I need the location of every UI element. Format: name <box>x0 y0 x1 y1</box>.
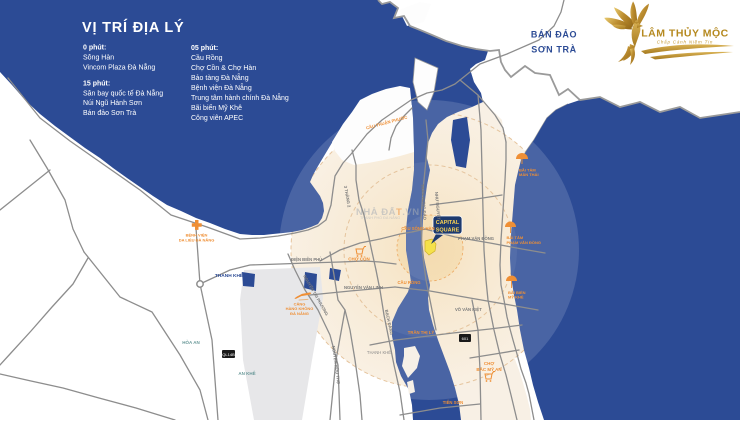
svg-text:Sông Hàn: Sông Hàn <box>83 55 114 62</box>
svg-text:Chắp Cánh Niềm Tin: Chắp Cánh Niềm Tin <box>657 39 713 45</box>
svg-text:CAPITAL: CAPITAL <box>436 220 460 226</box>
svg-text:SQUARE: SQUARE <box>436 228 460 234</box>
svg-text:Công viên APEC: Công viên APEC <box>191 115 243 122</box>
svg-text:LÂM THỦY MỘC: LÂM THỦY MỘC <box>641 27 728 40</box>
svg-text:0 phút:: 0 phút: <box>83 45 106 52</box>
svg-text:VÕ VĂN KIỆT: VÕ VĂN KIỆT <box>455 307 482 312</box>
svg-text:NGUYỄN VĂN LINH: NGUYỄN VĂN LINH <box>344 285 383 290</box>
svg-text:DA LIỄU ĐÀ NẴNG: DA LIỄU ĐÀ NẴNG <box>179 237 215 242</box>
svg-text:TIÊN SƠN: TIÊN SƠN <box>443 400 463 405</box>
svg-text:CHỢ CỒN: CHỢ CỒN <box>348 256 370 262</box>
svg-text:Sân bay quốc tế Đà Nẵng: Sân bay quốc tế Đà Nẵng <box>83 88 163 97</box>
svg-text:PHẠM VĂN ĐỒNG: PHẠM VĂN ĐỒNG <box>507 240 541 245</box>
svg-text:Trung tâm hành chính Đà Nẵng: Trung tâm hành chính Đà Nẵng <box>191 93 289 102</box>
svg-text:Bãi biển Mỹ Khê: Bãi biển Mỹ Khê <box>191 104 242 112</box>
svg-text:Bệnh viện Đà Nẵng: Bệnh viện Đà Nẵng <box>191 83 252 92</box>
svg-text:MỸ KHÊ: MỸ KHÊ <box>508 295 524 300</box>
svg-text:SƠN TRÀ: SƠN TRÀ <box>531 45 576 55</box>
svg-text:BÃI TẮM: BÃI TẮM <box>507 235 524 240</box>
svg-text:05 phút:: 05 phút: <box>191 45 218 52</box>
svg-text:CẢNG: CẢNG <box>294 301 306 306</box>
svg-text:HÀNG KHÔNG: HÀNG KHÔNG <box>286 306 314 311</box>
svg-text:MÂN THÁI: MÂN THÁI <box>519 172 539 177</box>
svg-text:Bảo tàng Đà Nẵng: Bảo tàng Đà Nẵng <box>191 73 249 82</box>
svg-text:QL14B: QL14B <box>222 352 235 357</box>
svg-text:Núi Ngũ Hành Sơn: Núi Ngũ Hành Sơn <box>83 100 142 107</box>
svg-text:ĐÀ NẴNG: ĐÀ NẴNG <box>290 311 309 316</box>
svg-text:Chợ Cồn & Chợ Hàn: Chợ Cồn & Chợ Hàn <box>191 63 256 72</box>
svg-text:CẦU SÔNG HÀN: CẦU SÔNG HÀN <box>401 226 434 231</box>
svg-text:TRẦN THỊ LÝ: TRẦN THỊ LÝ <box>408 330 435 335</box>
svg-text:ĐIỆN BIÊN PHỦ: ĐIỆN BIÊN PHỦ <box>291 257 322 262</box>
svg-text:Cầu Rồng: Cầu Rồng <box>191 53 223 62</box>
svg-text:PHẠM VĂN ĐỒNG: PHẠM VĂN ĐỒNG <box>458 236 494 241</box>
svg-text:Vincom Plaza Đà Nẵng: Vincom Plaza Đà Nẵng <box>83 62 155 71</box>
svg-text:Bán đảo Sơn Trà: Bán đảo Sơn Trà <box>83 110 136 117</box>
svg-text:601: 601 <box>462 336 469 341</box>
svg-text:BÁN ĐẢO: BÁN ĐẢO <box>531 29 577 40</box>
svg-text:CẦU RỒNG: CẦU RỒNG <box>397 280 421 285</box>
svg-text:CHỢ: CHỢ <box>484 361 494 366</box>
svg-text:15 phút:: 15 phút: <box>83 81 110 88</box>
svg-text:VỊ TRÍ ĐỊA LÝ: VỊ TRÍ ĐỊA LÝ <box>82 18 185 36</box>
svg-text:THÀNH PHỐ ĐÀ NẴNG: THÀNH PHỐ ĐÀ NẴNG <box>360 215 400 220</box>
svg-text:THANH KHÊ: THANH KHÊ <box>367 350 391 355</box>
